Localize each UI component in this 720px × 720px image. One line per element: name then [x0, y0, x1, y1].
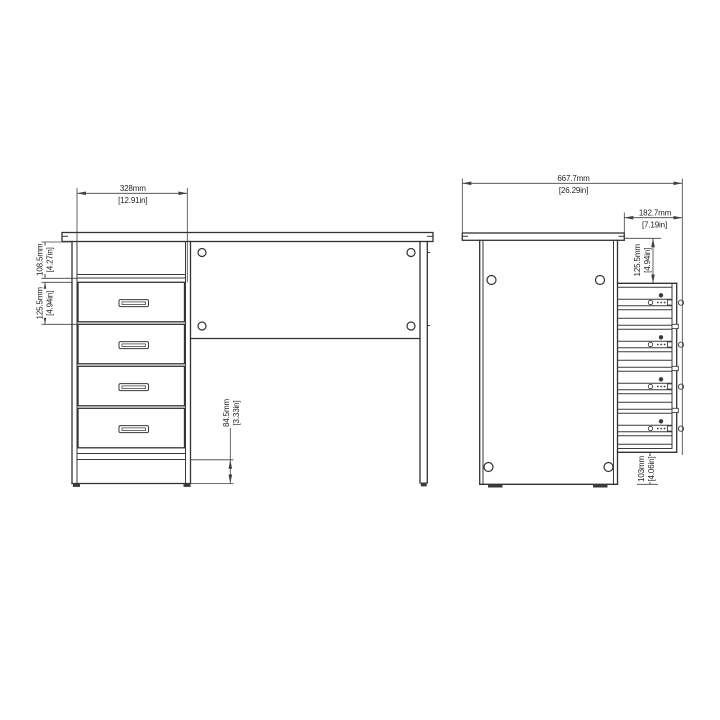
cam-hole [198, 322, 206, 330]
desk-top [462, 233, 624, 240]
connector-tab [672, 408, 678, 412]
foot-glide [421, 483, 427, 486]
dim-text-mm: 84.5mm [222, 399, 231, 427]
drawer-slide-4 [618, 419, 684, 444]
cam-hole [407, 322, 415, 330]
dim-text-in: [3.33in] [232, 400, 241, 425]
dim-text-mm: 125.5mm [633, 244, 642, 277]
foot-glide [488, 484, 503, 487]
back-panel [191, 249, 421, 339]
drawer-front-1 [78, 282, 185, 322]
side-view: 667.7mm [26.29in] 182.7mm [7.19in] 125.5… [462, 174, 683, 488]
foot-glide [593, 484, 608, 487]
foot-glide [184, 484, 191, 487]
dim-text-mm: 103mm [637, 456, 646, 482]
desk-top [62, 233, 433, 242]
drawer-slide-3 [618, 377, 684, 402]
dim-text-in: [4.94in] [643, 248, 652, 273]
desk-technical-drawing: 328mm [12.91in] 108.5mm [4.27in] 125.5mm… [0, 0, 720, 720]
foot-glide [73, 484, 80, 487]
drawer-box-side [618, 283, 684, 452]
dim-text-in: [12.91in] [118, 196, 147, 205]
connector-tab [672, 324, 678, 328]
dim-drawer-depth: 182.7mm [7.19in] [624, 209, 682, 241]
dim-text-mm: 328mm [120, 184, 146, 193]
drawer-front-3 [78, 366, 185, 406]
dim-text-in: [4.06in] [647, 456, 656, 481]
dim-text-mm: 108.5mm [36, 243, 45, 276]
dim-text-in: [7.19in] [642, 221, 667, 230]
drawer-slide-2 [618, 335, 684, 360]
cam-hole [484, 463, 493, 472]
cam-hole [596, 276, 605, 285]
drawing-canvas: 328mm [12.91in] 108.5mm [4.27in] 125.5mm… [0, 0, 720, 720]
dim-text-in: [26.29in] [559, 186, 588, 195]
dim-text-in: [4.27in] [46, 247, 55, 272]
cam-hole [487, 276, 496, 285]
cam-hole [198, 249, 206, 257]
side-panel [480, 240, 618, 487]
drawer-slide-1 [618, 293, 684, 318]
cam-hole [407, 249, 415, 257]
dim-text-in: [4.94in] [46, 291, 55, 316]
connector-tab [672, 366, 678, 370]
dim-plinth-height: 84.5mm [3.33in] [191, 399, 241, 484]
cam-hole [604, 463, 613, 472]
desk-leg [420, 242, 430, 487]
dim-slide-top-offset: 125.5mm [4.94in] [624, 238, 661, 283]
dim-text-mm: 667.7mm [557, 174, 590, 183]
dim-apron-height: 108.5mm [4.27in] [36, 242, 78, 278]
drawer-pedestal [72, 242, 191, 487]
dim-text-mm: 125.5mm [36, 287, 45, 320]
drawer-front-2 [78, 324, 185, 364]
dim-floor-clearance: 103mm [4.06in] [637, 452, 658, 484]
drawer-front-4 [78, 408, 185, 448]
dim-text-mm: 182.7mm [639, 209, 672, 218]
front-view: 328mm [12.91in] 108.5mm [4.27in] 125.5mm… [36, 184, 434, 487]
